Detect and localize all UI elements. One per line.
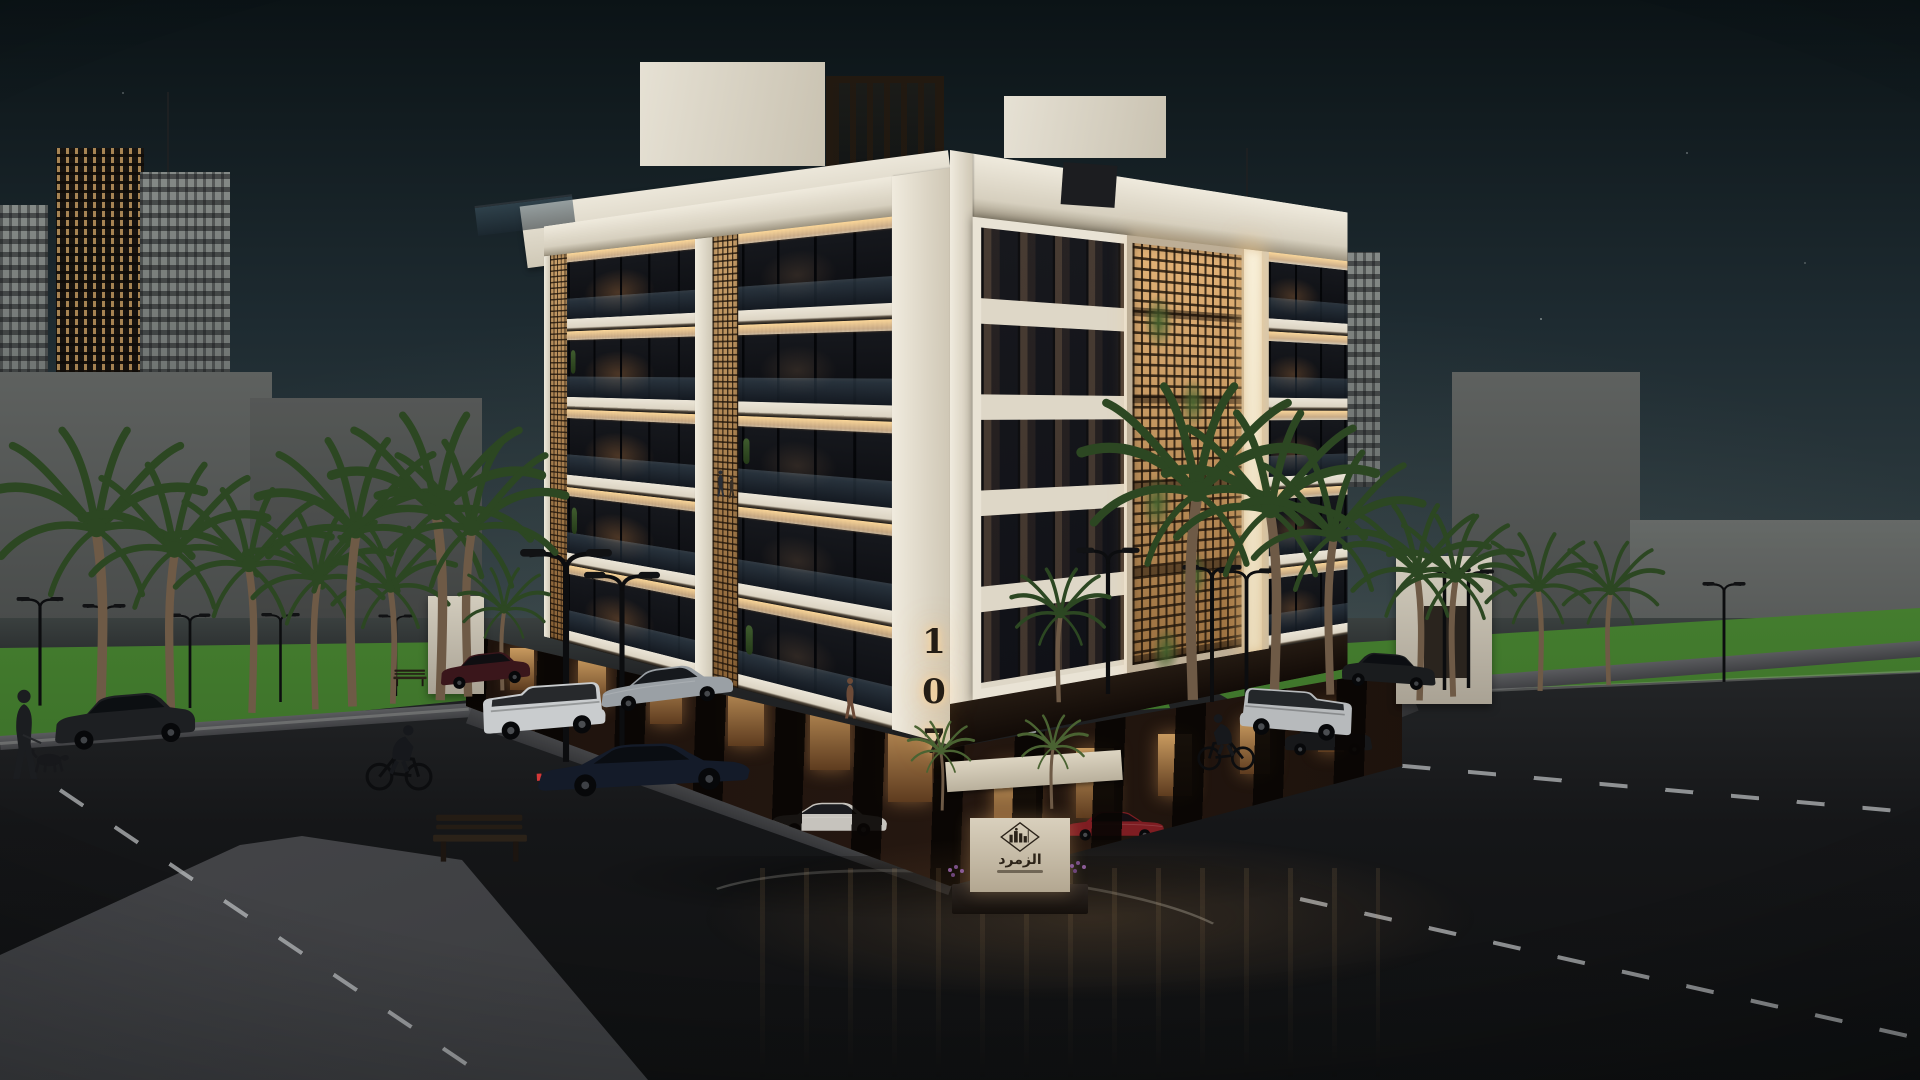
- balcony-person-phone: [840, 674, 860, 724]
- roof-penthouse-box-right: [1004, 96, 1166, 158]
- balcony-plant: [571, 350, 576, 373]
- facade-pier-middle: [695, 237, 713, 681]
- mashrabiya-strip-middle: [713, 234, 739, 688]
- cyclist-left: [362, 700, 434, 806]
- lit-niche: [1158, 734, 1192, 796]
- star: [1686, 152, 1688, 154]
- background-tower-left-lit: [56, 148, 144, 400]
- car-dark-muscle: [532, 726, 755, 803]
- dog: [28, 746, 72, 774]
- flower-bush: [948, 868, 952, 872]
- sign-title: الزمرد: [998, 853, 1041, 867]
- parapet-window: [1061, 162, 1118, 208]
- palm-tree-entrance: [906, 718, 976, 812]
- scene-root: 107 الزمرد: [0, 0, 1920, 1080]
- star: [1540, 318, 1542, 320]
- flower-bush: [1070, 864, 1074, 868]
- palm-tree-entrance: [1016, 712, 1090, 810]
- cyclist-right: [1196, 692, 1258, 784]
- sign-plaque: الزمرد: [970, 818, 1070, 892]
- sign-skyline-emblem-icon: [997, 821, 1043, 853]
- balcony-person-child: [726, 474, 737, 501]
- balcony-plant: [746, 625, 753, 656]
- balcony-plant: [572, 507, 577, 534]
- palm-tree: [1554, 537, 1667, 687]
- star: [1804, 262, 1806, 264]
- star: [122, 92, 124, 94]
- background-tower-far-left: [0, 205, 48, 400]
- bench: [430, 810, 530, 864]
- wing-floor-5: [1269, 252, 1347, 336]
- balcony-plant: [743, 438, 749, 464]
- roof-penthouse-box: [640, 62, 825, 166]
- antenna-left: [167, 92, 169, 177]
- car-dark-suv-right: [1339, 645, 1442, 694]
- sign-subtitle-line: [997, 870, 1043, 873]
- street-lamp: [1701, 574, 1747, 682]
- corner-return-pier: [950, 150, 973, 704]
- car-dark-crossover: [46, 680, 201, 756]
- bench-small: [392, 668, 428, 687]
- background-tower-left-gray: [140, 172, 230, 400]
- floor-4: [544, 317, 950, 424]
- entrance-sign: الزمرد: [952, 818, 1088, 914]
- screen-vine: [1144, 294, 1174, 350]
